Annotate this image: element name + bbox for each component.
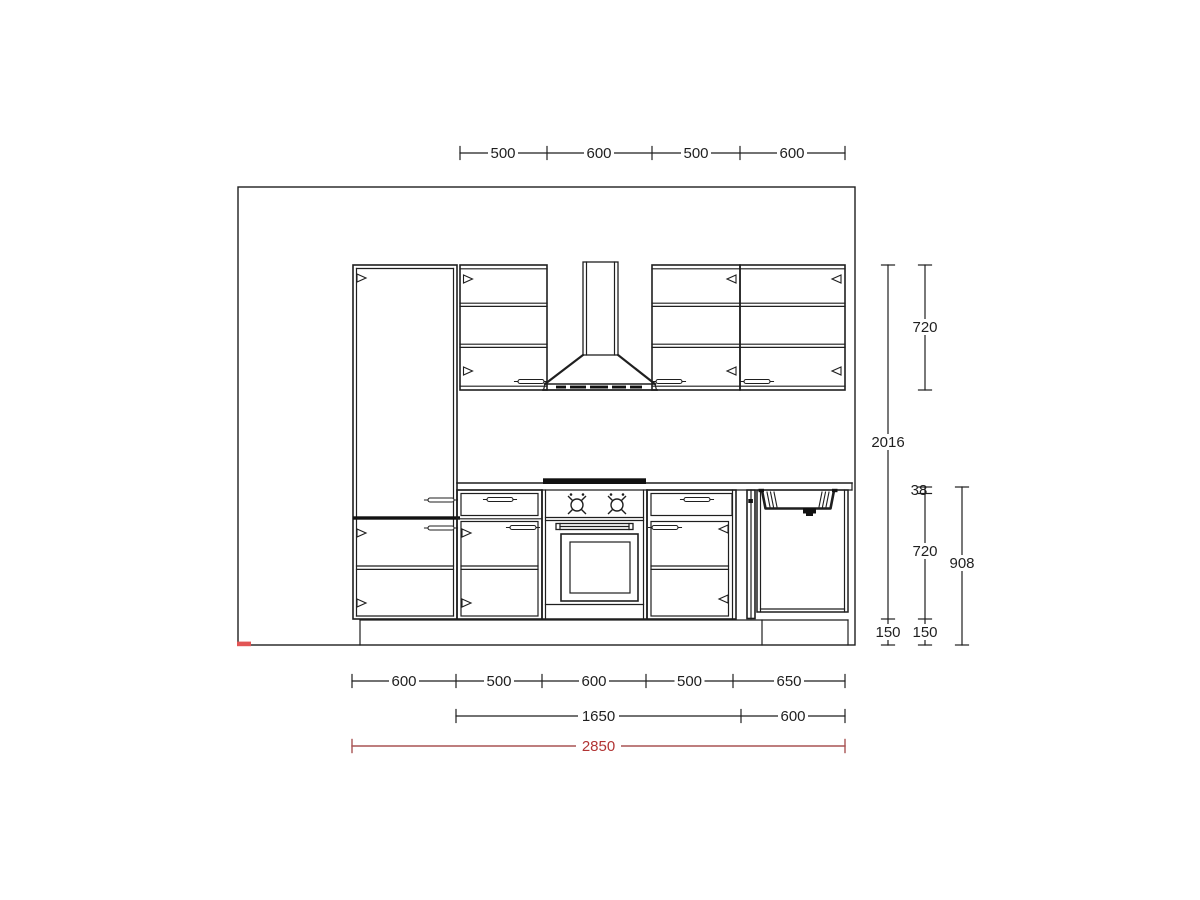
- dim-plinth-left-label: 150: [875, 624, 900, 641]
- dim-top-label-2: 600: [586, 145, 611, 162]
- range-hood: [543, 262, 657, 390]
- drawer-handle: [681, 498, 714, 502]
- door-handle: [507, 526, 540, 530]
- door-swing-icon: [832, 367, 841, 375]
- dim-worktop-height-label: 908: [949, 555, 974, 572]
- door-handle: [741, 380, 774, 384]
- elevation-canvas: 500 600 500 600 600 500 600 500 650 1650…: [0, 0, 1200, 900]
- door-swing-icon: [357, 529, 366, 537]
- door-swing-icon: [464, 275, 473, 283]
- oven-door-window: [561, 534, 638, 601]
- dim-group-label-2: 600: [780, 708, 805, 725]
- door-swing-icon: [727, 275, 736, 283]
- dim-bottom-label-4: 500: [677, 673, 702, 690]
- countertop: [457, 483, 852, 490]
- base-cabinet-2: [647, 490, 736, 619]
- door-swing-icon: [357, 599, 366, 607]
- filler-panel: [747, 490, 755, 619]
- drawer-handle: [484, 498, 517, 502]
- oven-knob-left: [569, 493, 586, 513]
- dim-worktop-thickness-label: 38: [911, 482, 928, 499]
- cad-elevation-view: 500 600 500 600 600 500 600 500 650 1650…: [0, 0, 1200, 900]
- dim-tall-height-label: 2016: [871, 434, 904, 451]
- hood-control-strip: [556, 386, 642, 389]
- tall-cabinet: [353, 265, 460, 619]
- plinth: [360, 620, 848, 645]
- oven: [542, 490, 647, 619]
- dim-total-label: 2850: [582, 738, 615, 755]
- door-handle: [425, 498, 458, 502]
- door-handle: [653, 380, 686, 384]
- door-swing-icon: [727, 367, 736, 375]
- hood-canopy: [543, 355, 657, 390]
- drawer-front: [651, 494, 732, 516]
- wall-cabinet-3: [740, 265, 845, 390]
- sink-hatch: [767, 492, 829, 507]
- drawer-front: [461, 494, 538, 516]
- dim-group-label-1: 1650: [582, 708, 615, 725]
- sink-drain: [803, 508, 816, 514]
- dim-wall-cab-height-label: 720: [912, 319, 937, 336]
- hood-chimney: [583, 262, 618, 355]
- dim-bottom-label-2: 500: [486, 673, 511, 690]
- wall-cabinet-2: [652, 265, 740, 390]
- sink: [759, 489, 838, 516]
- door-handle: [425, 526, 458, 530]
- door-swing-icon: [832, 275, 841, 283]
- dim-bottom-label-3: 600: [581, 673, 606, 690]
- door-swing-icon: [464, 367, 473, 375]
- oven-knob-right: [609, 493, 626, 513]
- door-swing-icon: [719, 525, 728, 533]
- door-swing-icon: [357, 274, 366, 282]
- base-cabinet-1: [457, 490, 542, 619]
- cooktop: [543, 478, 646, 484]
- dim-labels: 500 600 500 600 600 500 600 500 650 1650…: [389, 145, 980, 755]
- door-handle: [515, 380, 548, 384]
- wall-outline: [238, 187, 855, 645]
- dim-bottom-label-1: 600: [391, 673, 416, 690]
- door-swing-icon: [462, 599, 471, 607]
- dim-top-label-3: 500: [683, 145, 708, 162]
- oven-door-window-inner: [570, 542, 630, 593]
- wall-cabinet-1: [460, 265, 548, 390]
- door-swing-icon: [719, 595, 728, 603]
- dim-top-label-1: 500: [490, 145, 515, 162]
- dim-bottom-label-5: 650: [776, 673, 801, 690]
- dim-right-tall: [882, 265, 895, 645]
- dim-base-height-label: 720: [912, 543, 937, 560]
- door-front: [651, 522, 729, 617]
- door-front: [461, 522, 538, 617]
- origin-mark: [237, 642, 251, 647]
- door-swing-icon: [462, 529, 471, 537]
- dim-top-label-4: 600: [779, 145, 804, 162]
- door-handle: [649, 526, 682, 530]
- dim-plinth-right-label: 150: [912, 624, 937, 641]
- oven-handle: [556, 524, 633, 530]
